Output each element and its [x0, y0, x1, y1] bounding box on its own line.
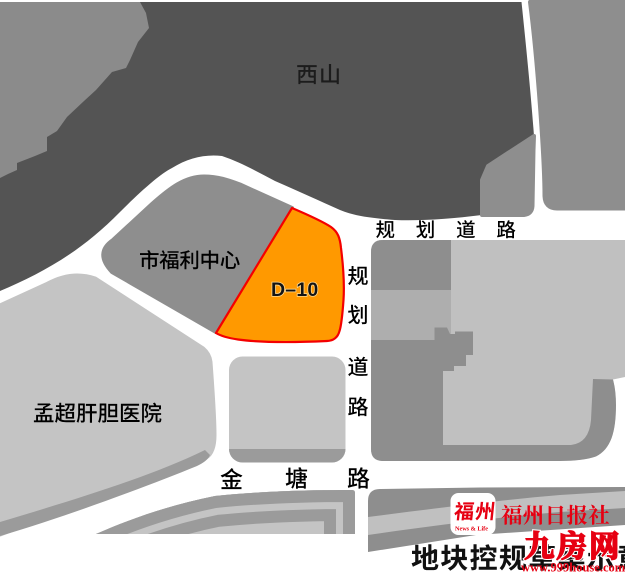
svg-text:D–10: D–10	[271, 279, 318, 301]
svg-text:News & Life: News & Life	[455, 526, 488, 533]
svg-text:www.999house.com: www.999house.com	[521, 561, 625, 575]
